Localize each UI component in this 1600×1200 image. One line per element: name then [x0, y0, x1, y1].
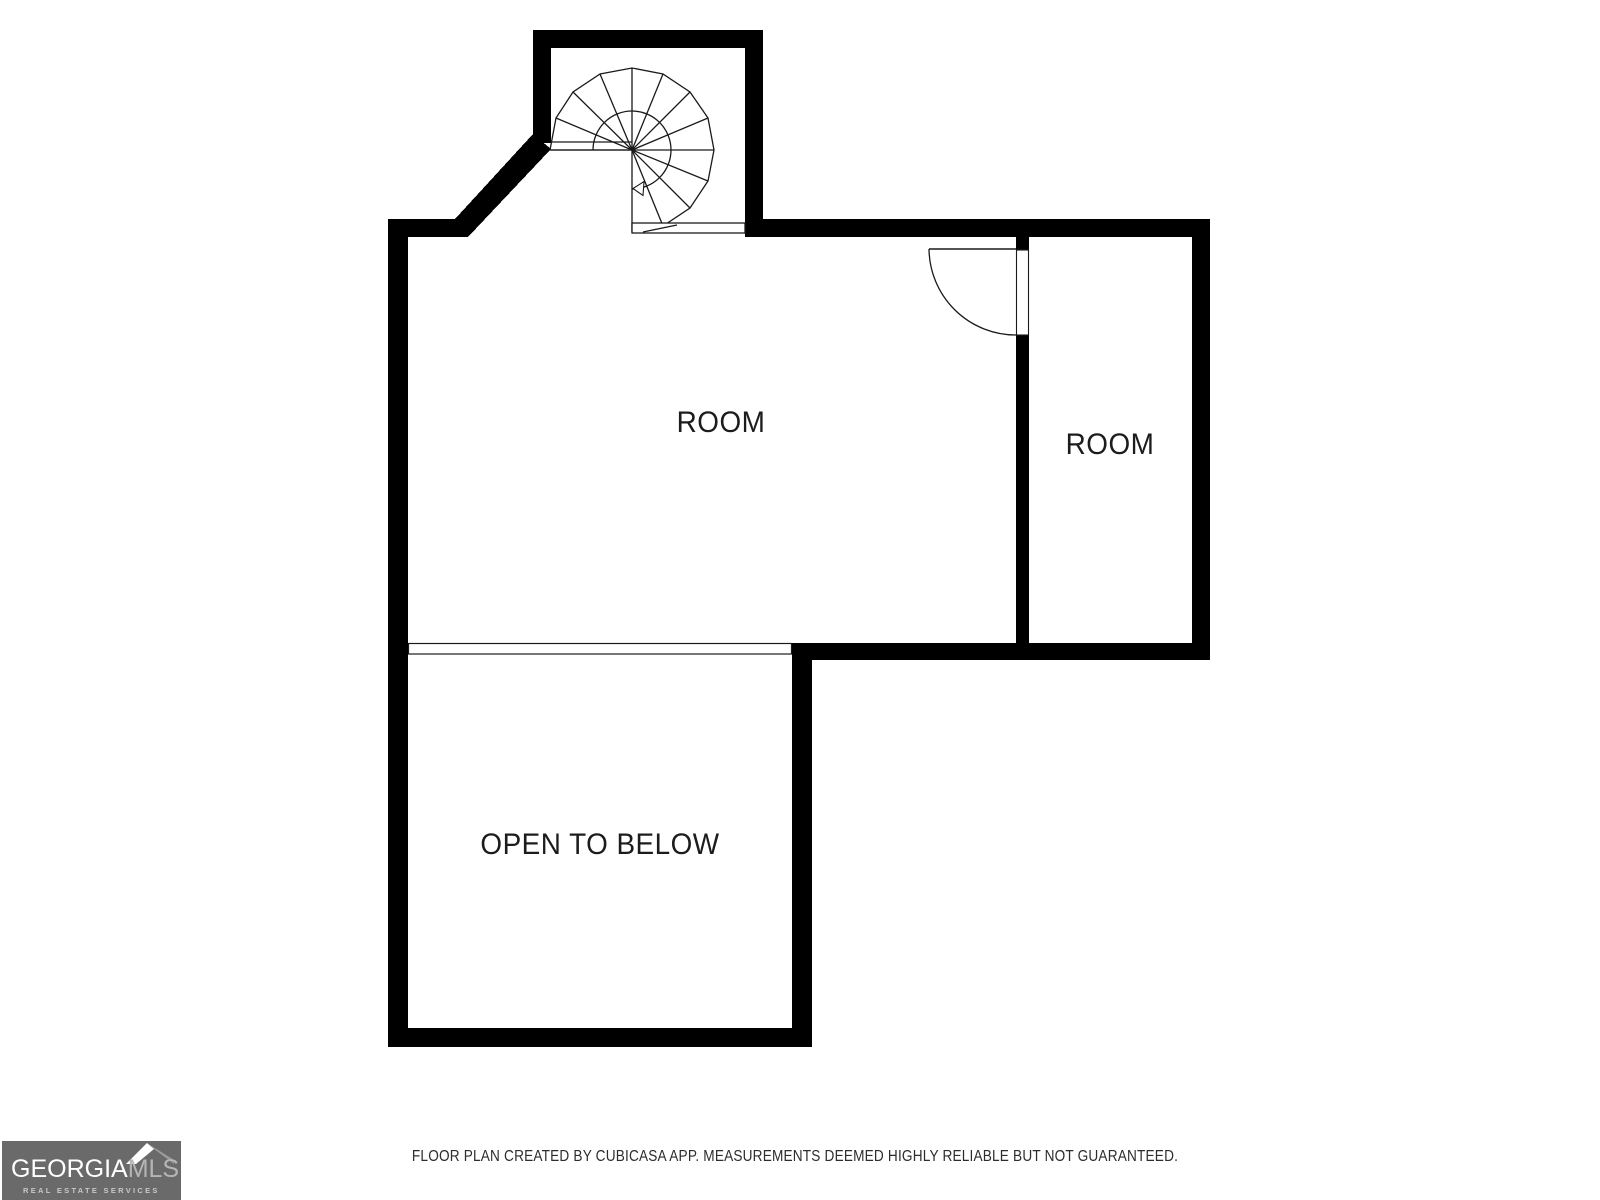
logo-brand-primary: GEORGIA — [11, 1155, 128, 1183]
walls — [388, 30, 1210, 1047]
wall-top-right — [745, 219, 1210, 237]
wall-interior-main — [1016, 335, 1029, 643]
spiral-staircase-icon — [550, 68, 745, 233]
door-icon — [929, 249, 1029, 335]
open-to-below-divider — [409, 644, 792, 655]
room-label-open-to-below: OPEN TO BELOW — [480, 828, 719, 862]
wall-otb-right — [792, 643, 812, 1047]
georgia-mls-logo: GEORGIAMLS REAL ESTATE SERVICES — [2, 1141, 181, 1200]
room-label-main: ROOM — [677, 406, 766, 440]
wall-left — [388, 219, 408, 1047]
wall-diagonal — [448, 134, 551, 237]
door-opening — [1017, 250, 1029, 335]
wall-bottom-mid — [792, 643, 1210, 660]
door-swing-arc — [929, 249, 1016, 335]
wall-stair-enclosure-top — [533, 30, 763, 48]
logo-tagline: REAL ESTATE SERVICES — [23, 1186, 160, 1195]
logo-wordmark: GEORGIAMLS — [11, 1157, 179, 1182]
wall-interior-stub — [1016, 237, 1029, 250]
wall-stair-enclosure-right — [745, 30, 763, 237]
stair-direction-arrow-icon — [633, 182, 644, 196]
stair-landing — [632, 223, 745, 233]
logo-brand-secondary: MLS — [128, 1155, 179, 1183]
disclaimer-text: FLOOR PLAN CREATED BY CUBICASA APP. MEAS… — [412, 1148, 1178, 1166]
wall-bottom — [388, 1028, 812, 1047]
wall-right-outer — [1192, 219, 1210, 660]
wall-stair-enclosure-left — [533, 30, 551, 143]
room-label-right: ROOM — [1066, 428, 1155, 462]
floor-plan — [0, 0, 1600, 1200]
